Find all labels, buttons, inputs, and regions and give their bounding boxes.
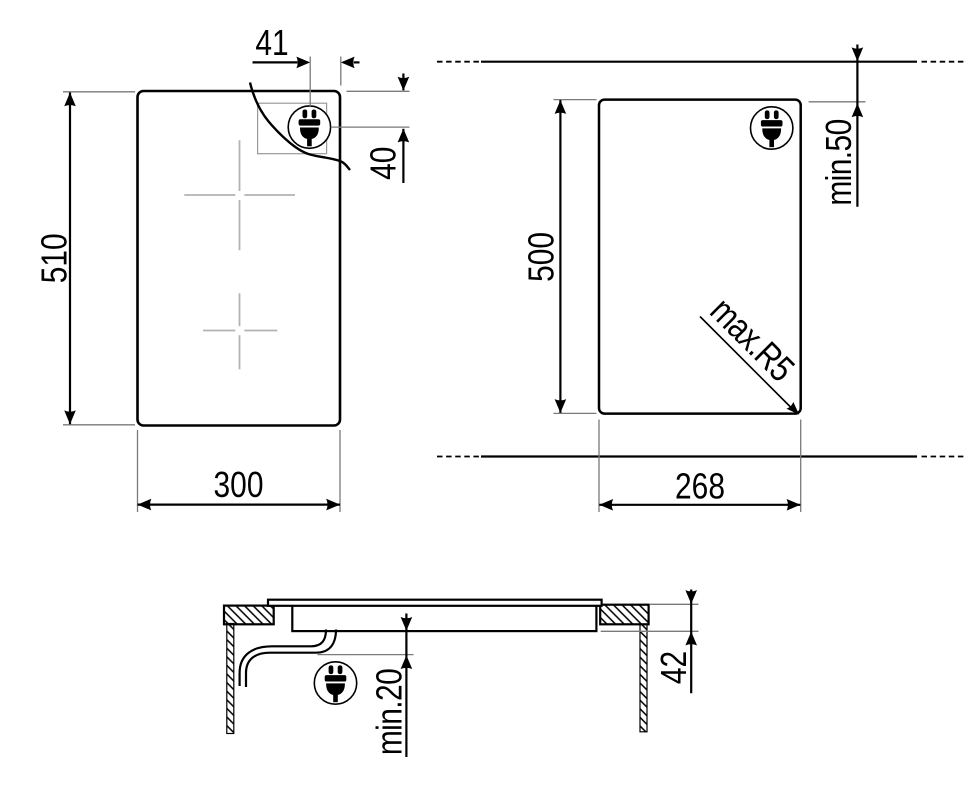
svg-text:40: 40	[364, 147, 404, 180]
svg-text:300: 300	[214, 465, 264, 505]
svg-text:42: 42	[654, 651, 694, 684]
svg-text:500: 500	[522, 232, 562, 282]
svg-text:268: 268	[675, 467, 725, 507]
svg-text:min.50: min.50	[819, 119, 859, 205]
svg-text:510: 510	[35, 233, 75, 283]
svg-text:41: 41	[255, 23, 288, 63]
svg-text:min.20: min.20	[370, 669, 410, 755]
